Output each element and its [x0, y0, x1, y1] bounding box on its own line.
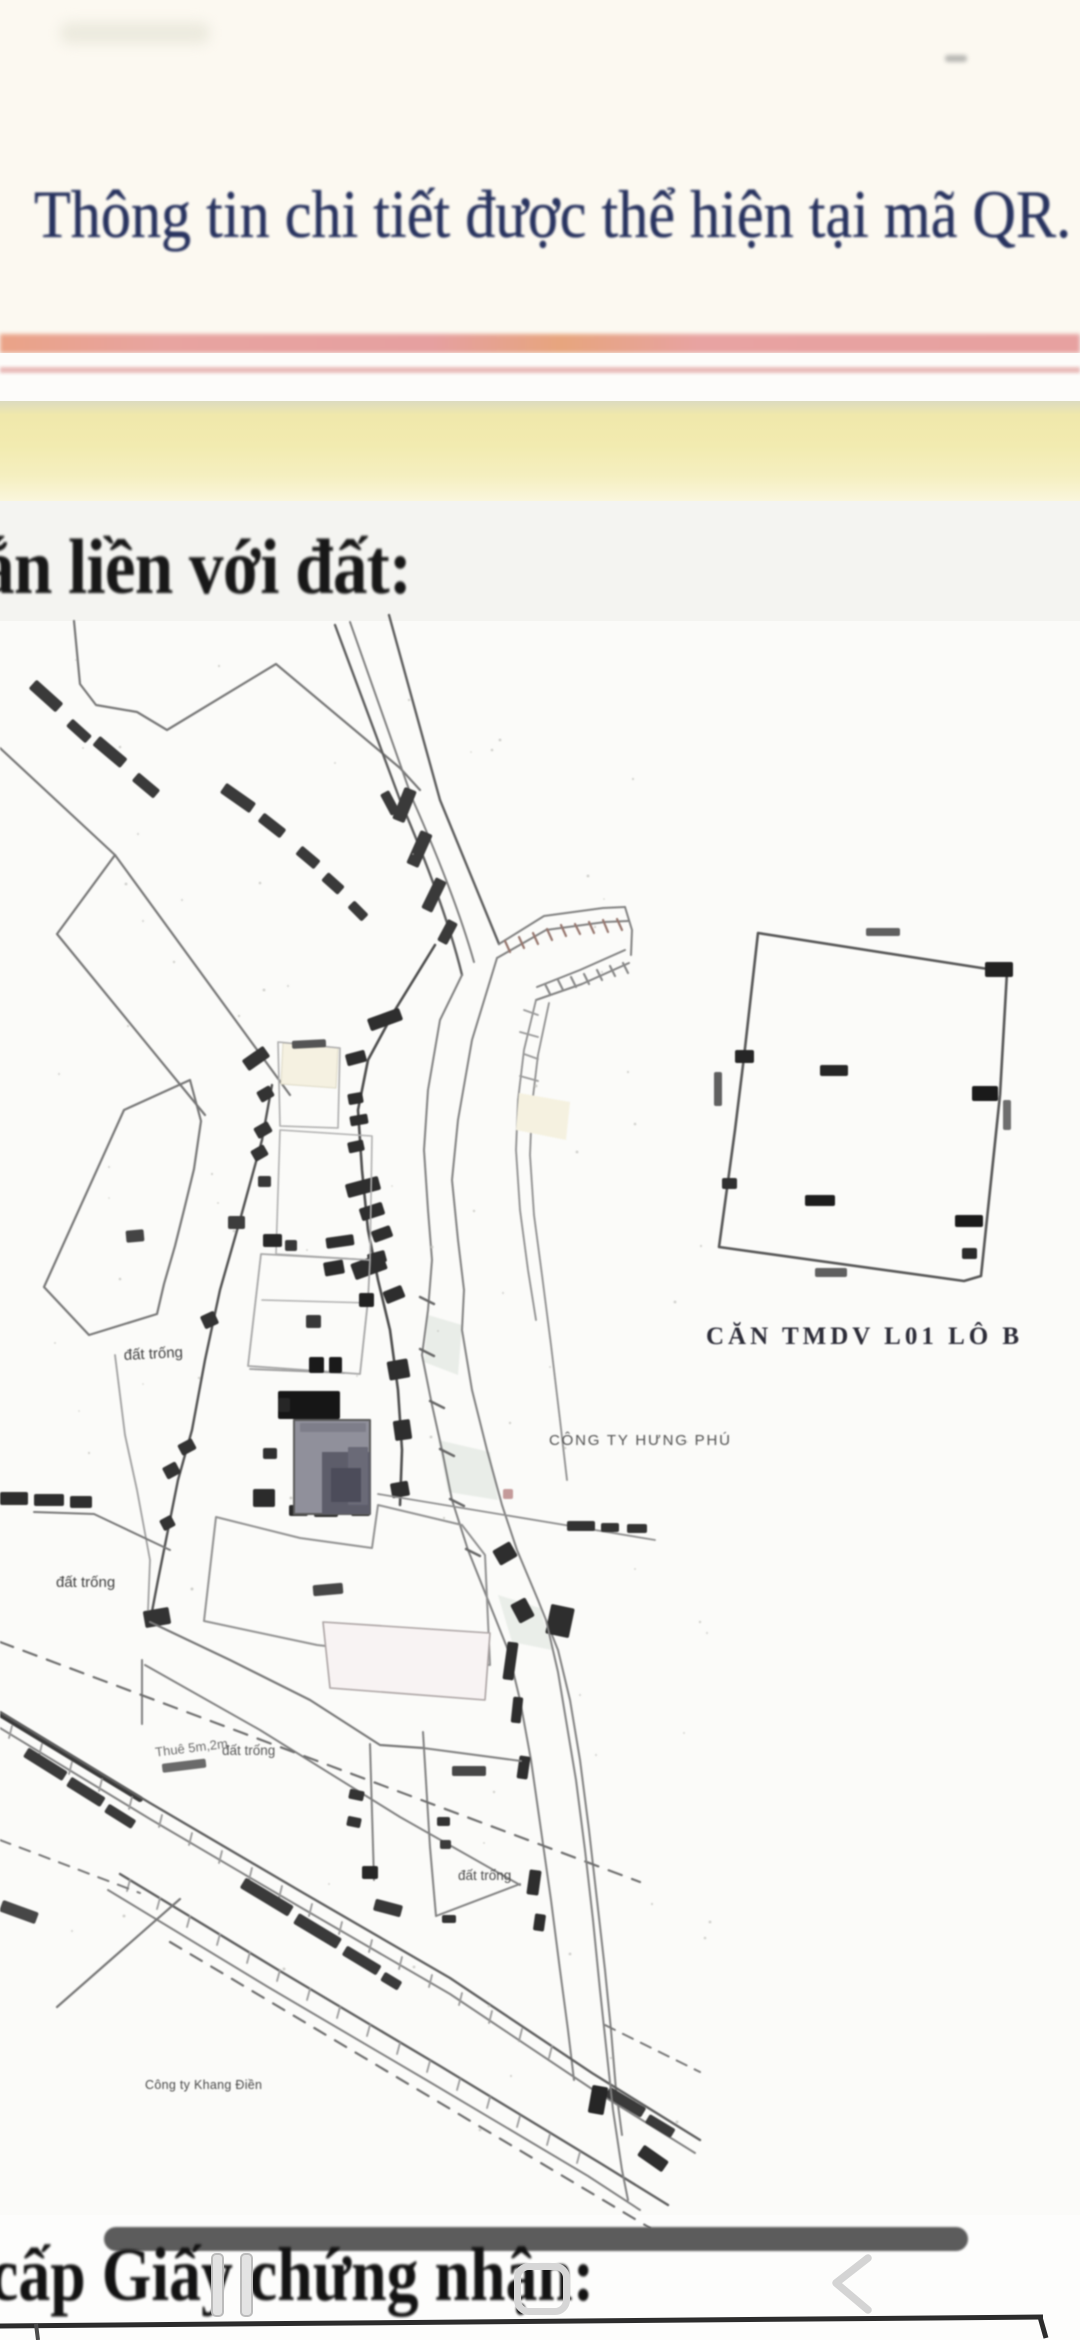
svg-text:Công ty Khang Điền: Công ty Khang Điền	[145, 2078, 262, 2092]
svg-text:đất trống: đất trống	[123, 1344, 183, 1364]
svg-text:đất trống: đất trống	[56, 1574, 115, 1591]
svg-text:đất trống: đất trống	[458, 1868, 511, 1883]
svg-text:CĂN TMDV L01 LÔ B: CĂN TMDV L01 LÔ B	[706, 1321, 1023, 1350]
svg-text:Thuê 5m,2m: Thuê 5m,2m	[154, 1736, 228, 1760]
svg-text:đất trống: đất trống	[222, 1743, 275, 1758]
svg-text:CÔNG TY HƯNG PHÚ: CÔNG TY HƯNG PHÚ	[549, 1432, 732, 1449]
